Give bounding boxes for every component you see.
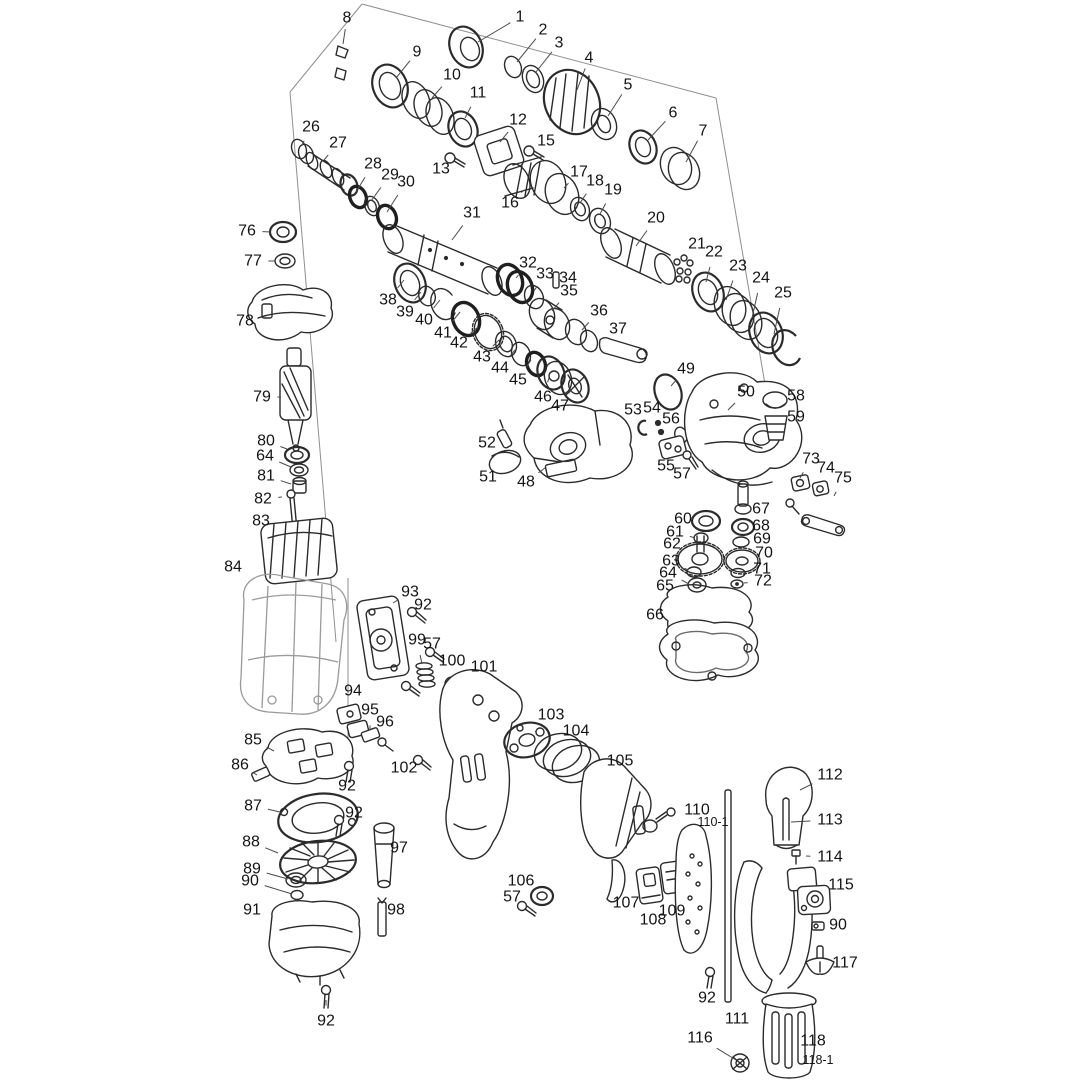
part-label-12: 12 [509, 112, 527, 129]
part-label-62: 62 [663, 536, 681, 553]
part-12-flange [473, 125, 526, 178]
part-59-boot [765, 416, 787, 440]
part-58-cap [763, 392, 787, 408]
part-label-102: 102 [391, 760, 418, 777]
part-106-grommet [531, 887, 553, 905]
leader-line-64 [279, 462, 291, 467]
part-label-22: 22 [705, 244, 723, 261]
part-label-100: 100 [439, 653, 466, 670]
part-label-8: 8 [343, 10, 352, 27]
part-26-rings [289, 137, 316, 166]
part-label-33: 33 [536, 266, 554, 283]
part-label-116: 116 [687, 1030, 713, 1047]
part-label-81: 81 [257, 468, 275, 485]
part-label-48: 48 [517, 474, 535, 491]
leader-line-49 [671, 381, 676, 387]
part-label-44: 44 [491, 360, 509, 377]
part-114-bolt [792, 850, 800, 864]
part-116-nut [731, 1054, 749, 1072]
part-label-36: 36 [590, 303, 608, 320]
leader-line-7 [686, 141, 698, 162]
part-41-seal [448, 298, 485, 339]
part-label-47: 47 [551, 398, 569, 415]
part-label-118-1: 118-1 [802, 1053, 833, 1067]
leader-line-5 [608, 94, 622, 116]
part-label-94: 94 [344, 683, 362, 700]
leader-line-116 [717, 1048, 736, 1060]
leader-line-27 [324, 155, 328, 160]
part-label-59: 59 [787, 409, 805, 426]
part-21-balls [674, 255, 693, 283]
part-label-98: 98 [387, 902, 405, 919]
part-label-75: 75 [834, 470, 852, 487]
part-27-shaft [304, 151, 361, 198]
part-label-87: 87 [244, 798, 262, 815]
part-label-31: 31 [463, 205, 481, 222]
part-64-ring-armature [290, 464, 308, 476]
part-label-56: 56 [662, 411, 680, 428]
part-60-bearing [692, 511, 720, 531]
leader-line-33 [534, 287, 537, 291]
part-label-54: 54 [643, 400, 661, 417]
leader-line-31 [452, 225, 463, 240]
part-67-spindle [735, 481, 751, 514]
part-label-77: 77 [244, 253, 262, 270]
part-label-88: 88 [242, 834, 260, 851]
part-label-85: 85 [244, 732, 262, 749]
leader-line-6 [648, 121, 665, 140]
part-label-53: 53 [624, 402, 642, 419]
leader-line-3 [536, 52, 552, 72]
part-label-18: 18 [586, 173, 604, 190]
part-label-106: 106 [508, 873, 535, 890]
part-20-spindle [597, 225, 680, 287]
part-90-ring-small [291, 891, 303, 900]
part-label-37: 37 [609, 321, 627, 338]
part-label-66: 66 [646, 607, 664, 624]
part-label-118: 118 [800, 1033, 826, 1050]
part-90-clip [812, 922, 824, 930]
leader-line-32 [516, 275, 518, 278]
part-label-101: 101 [471, 659, 498, 676]
part-79-armature [280, 348, 311, 451]
part-label-57: 57 [503, 889, 521, 906]
leader-line-23 [726, 281, 733, 301]
part-1-cap [443, 22, 488, 73]
leader-line-80 [280, 447, 287, 450]
part-label-5: 5 [624, 77, 633, 94]
leader-line-87 [268, 809, 280, 812]
part-5-ring [587, 105, 621, 144]
part-label-21: 21 [688, 236, 706, 253]
part-24-ring [743, 308, 788, 359]
part-37-connecting-rod [600, 338, 648, 363]
part-74-bracket [812, 480, 829, 496]
part-label-64: 64 [256, 448, 274, 465]
part-label-43: 43 [473, 349, 491, 366]
part-label-3: 3 [555, 35, 564, 52]
part-label-38: 38 [379, 292, 397, 309]
part-81-sleeve [293, 478, 306, 494]
part-92-screw-e [706, 968, 715, 989]
leader-line-2 [517, 39, 536, 62]
part-66-cover [660, 620, 759, 681]
part-73-bracket [786, 474, 810, 514]
leader-line-8 [343, 29, 345, 44]
part-label-23: 23 [729, 258, 747, 275]
part-label-30: 30 [397, 174, 415, 191]
part-label-104: 104 [563, 723, 590, 740]
part-label-39: 39 [396, 304, 414, 321]
part-label-15: 15 [537, 133, 555, 150]
part-label-20: 20 [647, 210, 665, 227]
part-98-rod [378, 898, 386, 936]
part-96-screw [378, 738, 393, 751]
part-label-32: 32 [519, 255, 537, 272]
part-69-washer [733, 537, 749, 547]
part-label-13: 13 [432, 161, 450, 178]
part-label-40: 40 [415, 312, 433, 329]
part-label-92: 92 [317, 1013, 335, 1030]
part-6-bearing-ring [625, 126, 662, 167]
part-label-19: 19 [604, 182, 622, 199]
part-label-49: 49 [677, 361, 695, 378]
part-label-84: 84 [224, 559, 242, 576]
part-88-fan [278, 837, 358, 887]
part-label-57: 57 [673, 466, 691, 483]
leader-line-81 [281, 481, 291, 484]
part-105-cover [581, 759, 651, 858]
part-10-bellows [397, 78, 459, 139]
part-label-82: 82 [254, 491, 272, 508]
part-label-113: 113 [817, 812, 843, 829]
part-label-6: 6 [669, 105, 678, 122]
part-43-ring [492, 328, 520, 360]
part-3-washer [518, 62, 547, 95]
part-label-58: 58 [787, 388, 805, 405]
part-label-45: 45 [509, 372, 527, 389]
part-label-76: 76 [238, 223, 256, 240]
part-label-51: 51 [479, 469, 497, 486]
part-label-35: 35 [560, 283, 578, 300]
part-label-74: 74 [817, 460, 835, 477]
part-label-107: 107 [613, 895, 640, 912]
part-101-handle-housing [440, 670, 522, 859]
part-label-96: 96 [376, 714, 394, 731]
part-99-spring [416, 663, 435, 687]
part-label-103: 103 [538, 707, 565, 724]
part-label-78: 78 [236, 313, 254, 330]
part-label-117: 117 [832, 955, 858, 972]
part-76-bearing [270, 222, 296, 242]
striker-assembly [289, 137, 647, 362]
leader-line-88 [265, 848, 278, 853]
part-label-92: 92 [698, 990, 716, 1007]
part-86-brush [251, 767, 270, 782]
part-label-90: 90 [829, 917, 847, 934]
part-label-4: 4 [585, 50, 594, 67]
part-label-92: 92 [345, 805, 363, 822]
part-78-crank-cap [248, 285, 333, 340]
part-label-114: 114 [817, 849, 843, 866]
part-53-clip [638, 421, 647, 435]
part-label-72: 72 [754, 573, 772, 590]
exploded-parts-diagram: 1234567891011121315161718192021222324252… [0, 0, 1080, 1080]
part-7-sleeve [655, 143, 705, 194]
leader-line-90 [265, 886, 292, 894]
part-75-link [802, 515, 845, 536]
part-93-controller-plate [356, 595, 410, 681]
part-label-46: 46 [534, 389, 552, 406]
part-57-screw-b2 [402, 682, 421, 697]
part-label-50: 50 [737, 384, 755, 401]
part-label-105: 105 [607, 753, 634, 770]
leader-line-64 [682, 580, 689, 584]
part-label-90: 90 [241, 873, 259, 890]
part-91-fan-cover [269, 901, 360, 985]
part-8-clips [335, 46, 348, 80]
part-108-switch [636, 866, 664, 904]
part-label-57: 57 [423, 636, 441, 653]
part-label-111: 111 [725, 1011, 749, 1028]
part-77-ring [275, 254, 295, 268]
part-label-112: 112 [817, 767, 843, 784]
part-label-1: 1 [516, 9, 525, 26]
part-label-110-1: 110-1 [697, 815, 728, 829]
part-84-motor-housing [240, 574, 346, 714]
part-25-snap-ring [772, 330, 800, 365]
part-label-65: 65 [656, 578, 674, 595]
part-label-9: 9 [413, 44, 422, 61]
part-label-27: 27 [329, 135, 347, 152]
part-label-16: 16 [501, 195, 519, 212]
part-label-67: 67 [752, 501, 770, 518]
diagram-canvas: 1234567891011121315161718192021222324252… [0, 0, 1080, 1080]
part-label-86: 86 [231, 757, 249, 774]
part-label-92: 92 [338, 778, 356, 795]
part-110-grip-insert [675, 824, 711, 953]
part-label-28: 28 [364, 156, 382, 173]
part-label-42: 42 [450, 335, 468, 352]
part-label-70: 70 [755, 545, 773, 562]
part-label-2: 2 [539, 22, 548, 39]
part-label-10: 10 [443, 67, 461, 84]
part-label-83: 83 [252, 513, 270, 530]
leader-line-46 [548, 378, 549, 382]
part-72-washer [731, 580, 743, 588]
part-label-79: 79 [253, 389, 271, 406]
part-68-hub [732, 519, 754, 535]
side-handle-assembly [322, 767, 835, 1078]
part-label-26: 26 [302, 119, 320, 136]
part-115-clamp [787, 867, 831, 915]
part-label-97: 97 [390, 840, 408, 857]
part-117-wing-bolt [806, 946, 834, 974]
part-label-93: 93 [401, 584, 419, 601]
part-52-lever [496, 420, 512, 449]
part-label-11: 11 [470, 85, 487, 102]
part-label-25: 25 [774, 285, 792, 302]
part-85-brush-holder [262, 729, 353, 784]
part-80-bearing [285, 447, 309, 463]
part-label-109: 109 [659, 903, 686, 920]
part-9-ring [366, 59, 414, 113]
part-4-change-cover [534, 61, 610, 143]
part-label-91: 91 [243, 902, 261, 919]
part-label-24: 24 [752, 270, 770, 287]
leader-line-75 [834, 492, 836, 496]
part-label-115: 115 [828, 877, 854, 894]
part-label-52: 52 [478, 435, 496, 452]
part-label-7: 7 [699, 123, 708, 140]
